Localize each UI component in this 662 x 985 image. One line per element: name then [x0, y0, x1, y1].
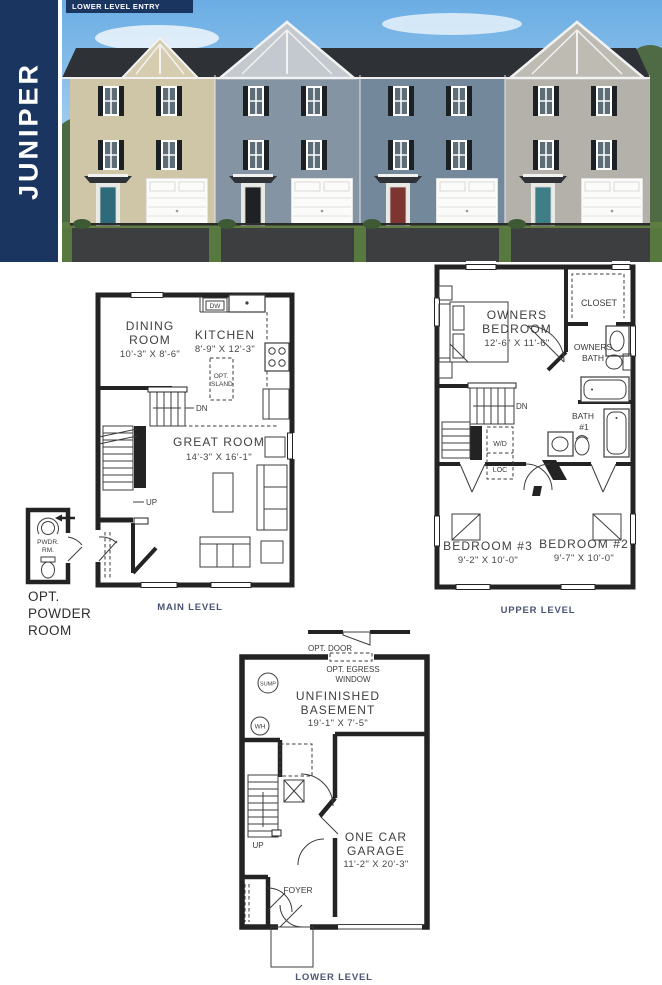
toilet [575, 437, 589, 455]
owners-bath-label-2: BATH [582, 353, 604, 363]
dn-label: DN [516, 402, 528, 411]
wh-label: WH [255, 724, 266, 731]
toilet [42, 562, 55, 578]
dw-label: DW [210, 303, 222, 310]
owners-bedroom-dims: 12'-6" X 11'-6" [484, 338, 549, 349]
closet-label: CLOSET [581, 298, 618, 308]
sump-label: SUMP [260, 682, 276, 688]
elevation-photo [62, 0, 662, 262]
upper-level-caption: UPPER LEVEL [501, 605, 576, 616]
basement-label-2: BASEMENT [301, 703, 376, 717]
main-level-caption: MAIN LEVEL [157, 602, 223, 613]
coffee-table [213, 473, 233, 512]
island-label-2: ISLAND [209, 381, 233, 388]
townhouse-photo-illustration [62, 0, 662, 262]
sofa [200, 537, 250, 567]
closet-shelf [572, 274, 624, 318]
nightstand [439, 362, 452, 378]
basement-label: UNFINISHED [296, 689, 380, 703]
sectional [257, 465, 287, 530]
refrigerator [263, 389, 289, 419]
storage-dashed [280, 744, 312, 776]
bedroom3-dims: 9'-2" X 10'-0" [458, 555, 518, 566]
upper-level-plan: OWNERS BEDROOM 12'-6" X 11'-6" CLOSET OW… [430, 262, 662, 617]
pedestal-sink [42, 522, 55, 535]
bedroom-closet-doors [452, 464, 621, 540]
dining-room-dims: 10'-3" X 8'-6" [120, 349, 180, 360]
townhouse-building [62, 22, 650, 229]
powder-label: PWDR. [37, 539, 59, 546]
up-label: UP [252, 841, 263, 850]
main-level-plan: DINING ROOM 10'-3" X 8'-6" KITCHEN 8'-9"… [15, 285, 315, 650]
lower-stairs [248, 775, 281, 837]
garage-dims: 11'-2" X 20'-3" [343, 859, 408, 870]
island-label: OPT. [214, 373, 229, 380]
powder-label-2: RM. [42, 547, 54, 554]
owners-bedroom-label: OWNERS [487, 308, 548, 322]
bath1-label: BATH [572, 411, 594, 421]
powder-caption-1: OPT. [28, 589, 60, 604]
wd-label: W/D [493, 441, 507, 448]
lower-level-plan: OPT. DOOR OPT. EGRESS WINDOW SUMP WH UNF… [228, 622, 440, 985]
basement-dims: 19'-1" X 7'-5" [308, 718, 368, 729]
great-room-dims: 14'-3" X 16'-1" [186, 452, 252, 463]
armchair [261, 541, 283, 563]
bath1-label-2: #1 [579, 422, 589, 432]
opt-door-label: OPT. DOOR [308, 644, 352, 653]
bedroom2-label: BEDROOM #2 [539, 537, 629, 551]
loc-label: LOC [493, 467, 507, 474]
model-name: JUNIPER [14, 62, 45, 200]
owners-bedroom-label-2: BEDROOM [482, 322, 552, 336]
great-room-label: GREAT ROOM [173, 435, 265, 449]
bedroom2-dims: 9'-7" X 10'-0" [554, 553, 614, 564]
powder-room [28, 510, 82, 582]
up-label: UP [146, 498, 157, 507]
model-name-sidebar: JUNIPER [0, 0, 58, 262]
dining-room-label-2: ROOM [129, 333, 171, 347]
dining-room-label: DINING [126, 319, 175, 333]
bedroom3-label: BEDROOM #3 [443, 539, 533, 553]
entry-type-banner: LOWER LEVEL ENTRY [66, 0, 193, 13]
armchair [265, 437, 285, 457]
powder-caption-2: POWDER [28, 606, 91, 621]
cloud [382, 13, 522, 35]
owners-bath-label: OWNERS [574, 342, 613, 352]
kitchen-dims: 8'-9" X 12'-3" [195, 344, 255, 355]
nightstand [439, 286, 452, 300]
kitchen-label: KITCHEN [195, 328, 255, 342]
garage-label: ONE CAR [345, 830, 407, 844]
powder-caption-3: ROOM [28, 623, 72, 638]
foyer-label: FOYER [283, 885, 312, 895]
owners-bath-fixtures [581, 326, 631, 402]
garage-label-2: GARAGE [347, 844, 405, 858]
egress-label-2: WINDOW [335, 675, 371, 684]
kitchen-fixtures [200, 295, 289, 419]
entry-arrow [55, 515, 62, 522]
lower-level-caption: LOWER LEVEL [295, 972, 372, 983]
floorplan-sheet: JUNIPER LOWER LEVEL ENTRY [0, 0, 662, 985]
stairs-dn [148, 387, 194, 426]
toilet-tank [41, 557, 55, 562]
range [265, 343, 289, 371]
dn-label: DN [196, 404, 208, 413]
toilet [606, 355, 622, 369]
egress-label: OPT. EGRESS [326, 665, 379, 674]
foundation-line [70, 223, 650, 226]
